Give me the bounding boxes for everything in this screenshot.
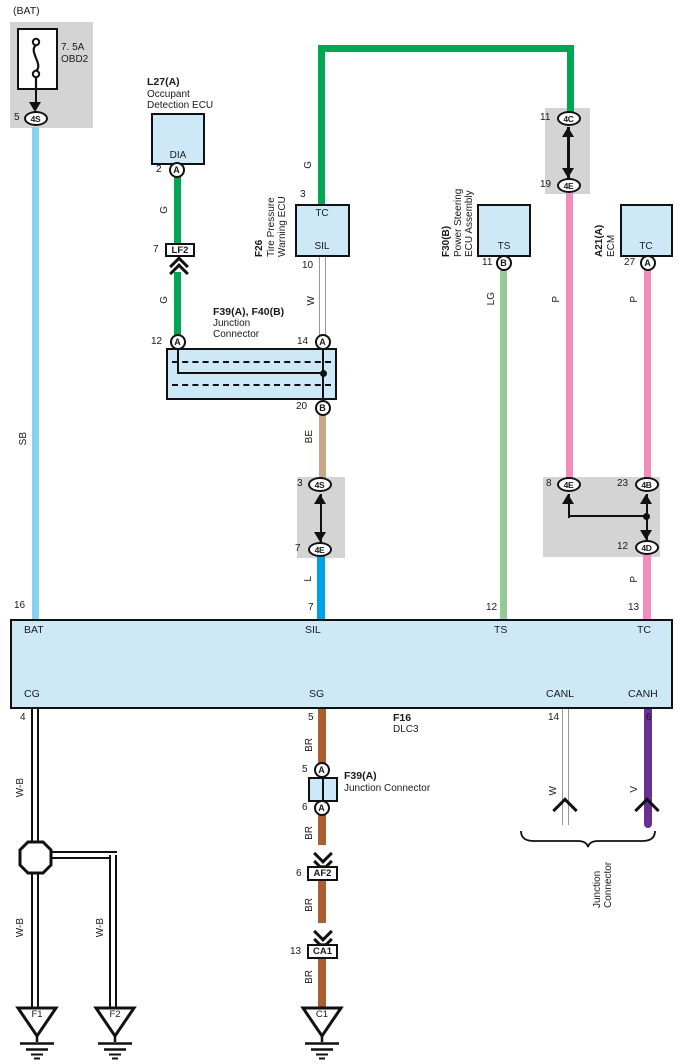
wiring-diagram: (BAT) 7. 5A OBD2 5 4S L27(A) Occupant De… bbox=[0, 0, 684, 1064]
wire-label-br: BR bbox=[304, 826, 316, 840]
dlc3-pin-tc-number: 13 bbox=[628, 602, 639, 614]
ecm-terminal: TC bbox=[626, 241, 666, 253]
connector-4s-mid: 4S bbox=[308, 477, 332, 492]
dlc3-pin-bat-number: 16 bbox=[14, 600, 25, 612]
tire-ecu-pin-top-number: 3 bbox=[300, 189, 306, 201]
occupant-ecu-pin-connector: A bbox=[169, 162, 185, 178]
wire-wb-f1 bbox=[31, 872, 39, 1008]
junction-small-pin-bottom-number: 6 bbox=[302, 802, 308, 814]
conn-tr-pin-top-number: 11 bbox=[540, 112, 550, 124]
wire-label-br: BR bbox=[304, 898, 316, 912]
conn-right-pin-left-number: 8 bbox=[546, 478, 552, 490]
junction-main-code: F39(A), F40(B) bbox=[213, 306, 284, 318]
junction-main-name1: Junction bbox=[213, 318, 250, 330]
steering-ecu-name1: Power Steering bbox=[453, 150, 465, 257]
wire-p-left bbox=[566, 193, 573, 478]
junction-main-name2: Connector bbox=[213, 329, 259, 341]
fuse-symbol-icon bbox=[19, 30, 55, 88]
wire-label-lg: LG bbox=[486, 292, 498, 305]
dlc3-pin-cg-number: 4 bbox=[20, 712, 26, 724]
wire-label-br: BR bbox=[304, 738, 316, 752]
junction-small-code: F39(A) bbox=[344, 770, 377, 782]
junction-main-internal-wire bbox=[177, 372, 324, 374]
wire-wb-f2 bbox=[109, 855, 117, 1008]
wire-label-p: P bbox=[629, 576, 641, 583]
steering-ecu-pin-connector: B bbox=[496, 255, 512, 271]
dlc3-name: DLC3 bbox=[393, 724, 419, 736]
tire-ecu-code: F26 bbox=[254, 150, 266, 257]
ecm-name: ECM bbox=[606, 150, 618, 257]
dlc3-terminal-sil: SIL bbox=[305, 624, 321, 636]
ground-f1-label: F1 bbox=[24, 1010, 50, 1021]
occupant-ecu-code: L27(A) bbox=[147, 76, 180, 88]
conn-right-arrow-down-icon bbox=[640, 530, 652, 540]
steering-ecu-name2: ECU Assembly bbox=[464, 150, 476, 257]
junction-main-splice-dot bbox=[320, 370, 327, 377]
connector-4s-top: 4S bbox=[24, 111, 48, 126]
conn-mid-arrow-down-icon bbox=[314, 532, 326, 542]
connector-4c: 4C bbox=[557, 111, 581, 126]
tire-ecu-name2: Warning ECU bbox=[277, 150, 289, 257]
fuse-pin-number: 5 bbox=[14, 112, 20, 124]
dlc3-terminal-tc: TC bbox=[637, 624, 651, 636]
conn-tr-pin-bottom-number: 19 bbox=[540, 179, 551, 191]
conn-right-arrow-up-left-icon bbox=[562, 494, 574, 504]
junction-main-pin-bottom: B bbox=[315, 400, 331, 416]
wire-p-to-dlc3 bbox=[643, 555, 651, 619]
conn-right-arrow-up-right-icon bbox=[640, 494, 652, 504]
wire-g-top-horizontal bbox=[318, 45, 574, 52]
connector-4d: 4D bbox=[635, 540, 659, 555]
dlc3-code: F16 bbox=[393, 712, 411, 724]
junction-main-pin-right: A bbox=[315, 334, 331, 350]
steering-ecu-code: F30(B) bbox=[441, 150, 453, 257]
ca1-connector: CA1 bbox=[307, 944, 338, 959]
wire-lg bbox=[500, 270, 507, 619]
fuse-rating: 7. 5A bbox=[61, 42, 84, 54]
tire-ecu-pin-bottom-number: 10 bbox=[302, 260, 313, 272]
steering-ecu-pin-number: 11 bbox=[482, 257, 492, 269]
wire-label-wb: W-B bbox=[15, 778, 27, 797]
wire-label-wb: W-B bbox=[95, 918, 107, 937]
canh-open-arrow-icon bbox=[634, 797, 659, 822]
conn-right-splice-dot bbox=[643, 513, 650, 520]
ground-c1-label: C1 bbox=[309, 1010, 335, 1021]
wire-label-g: G bbox=[159, 296, 171, 304]
conn-mid-pin-bottom-number: 7 bbox=[295, 543, 301, 555]
dlc3-terminal-sg: SG bbox=[309, 688, 324, 700]
fuse-caption: (BAT) bbox=[13, 5, 40, 17]
occupant-ecu-pin-number: 2 bbox=[156, 164, 162, 176]
occupant-ecu-terminal: DIA bbox=[158, 150, 198, 162]
wire-label-l: L bbox=[303, 576, 315, 582]
junction-main-box bbox=[166, 348, 337, 400]
wire-w-sil bbox=[319, 257, 326, 335]
wire-be bbox=[319, 415, 326, 478]
wire-label-g: G bbox=[159, 206, 171, 214]
wire-label-w: W bbox=[548, 786, 560, 795]
steering-ecu-terminal: TS bbox=[484, 241, 524, 253]
dlc3-terminal-ts: TS bbox=[494, 624, 507, 636]
junction-main-dashed-line bbox=[172, 384, 331, 386]
dlc3-pin-sg-number: 5 bbox=[308, 712, 314, 724]
ecm-pin-connector: A bbox=[640, 255, 656, 271]
conn-tr-arrow-up-icon bbox=[562, 127, 574, 137]
conn-mid-pin-top-number: 3 bbox=[297, 478, 303, 490]
af2-pin-number: 6 bbox=[296, 868, 302, 880]
conn-tr-arrow-down-icon bbox=[562, 168, 574, 178]
connector-4e-top-right: 4E bbox=[557, 178, 581, 193]
wire-label-p: P bbox=[629, 296, 641, 303]
connector-4b: 4B bbox=[635, 477, 659, 492]
wire-wb-upper bbox=[31, 709, 39, 842]
wire-label-wb: W-B bbox=[15, 918, 27, 937]
af2-connector: AF2 bbox=[307, 866, 338, 881]
junction-small-name: Junction Connector bbox=[344, 783, 430, 795]
ecm-pin-number: 27 bbox=[624, 257, 635, 269]
connector-4e-mid: 4E bbox=[308, 542, 332, 557]
occupant-ecu-name1: Occupant bbox=[147, 89, 190, 101]
wire-g-dia-upper bbox=[174, 168, 181, 244]
wire-g-tc-up bbox=[318, 45, 325, 205]
wire-label-v: V bbox=[629, 786, 641, 793]
wire-l bbox=[317, 556, 325, 619]
dlc3-pin-canl-number: 14 bbox=[548, 712, 559, 724]
occupant-ecu-name2: Detection ECU bbox=[147, 100, 213, 112]
dlc3-terminal-bat: BAT bbox=[24, 624, 44, 636]
wire-label-be: BE bbox=[304, 430, 316, 443]
tire-ecu-terminal-top: TC bbox=[302, 208, 342, 220]
connector-4e-right: 4E bbox=[557, 477, 581, 492]
wire-label-p: P bbox=[551, 296, 563, 303]
junction-small-pin-top-number: 5 bbox=[302, 764, 308, 776]
tire-ecu-name1: Tire Pressure bbox=[266, 150, 278, 257]
junction-main-internal-wire bbox=[177, 350, 179, 373]
wire-g-top-down bbox=[567, 45, 574, 113]
ca1-pin-number: 13 bbox=[290, 946, 301, 958]
conn-right-pin-right-number: 23 bbox=[617, 478, 628, 490]
wire-label-br: BR bbox=[304, 970, 316, 984]
wire-label-w: W bbox=[306, 296, 318, 305]
dlc3-terminal-cg: CG bbox=[24, 688, 40, 700]
junction-main-pin-left: A bbox=[170, 334, 186, 350]
wire-p-ecm bbox=[644, 270, 651, 478]
junction-main-pin-right-number: 14 bbox=[297, 336, 308, 348]
conn-right-line-horizontal bbox=[568, 515, 649, 518]
junction-brace-icon bbox=[518, 830, 658, 850]
junction-main-pin-left-number: 12 bbox=[151, 336, 162, 348]
junction-brace-name1: Junction bbox=[592, 848, 604, 908]
junction-small-pin-bottom: A bbox=[314, 800, 330, 816]
wire-sb bbox=[32, 127, 39, 620]
splice-octagon-icon bbox=[18, 840, 53, 875]
dlc3-pin-sil-number: 7 bbox=[308, 602, 314, 614]
junction-brace-name2: Connector bbox=[603, 848, 615, 908]
lf2-connector: LF2 bbox=[165, 243, 195, 257]
wire-label-g: G bbox=[303, 161, 315, 169]
lf2-pin-number: 7 bbox=[153, 244, 159, 256]
wire-wb-branch-horizontal bbox=[49, 851, 117, 859]
dlc3-terminal-canl: CANL bbox=[546, 688, 574, 700]
junction-main-dashed-line bbox=[172, 361, 331, 363]
tire-ecu-terminal-bottom: SIL bbox=[302, 241, 342, 253]
fuse-name: OBD2 bbox=[61, 54, 88, 66]
ground-f2-label: F2 bbox=[102, 1010, 128, 1021]
junction-small-pin-top: A bbox=[314, 762, 330, 778]
dlc3-pin-canh-number: 6 bbox=[646, 712, 652, 724]
wire-label-sb: SB bbox=[18, 432, 30, 445]
dlc3-pin-ts-number: 12 bbox=[486, 602, 497, 614]
conn-mid-arrow-up-icon bbox=[314, 494, 326, 504]
ecm-code: A21(A) bbox=[594, 150, 606, 257]
junction-small-divider bbox=[322, 779, 324, 800]
canl-open-arrow-icon bbox=[552, 797, 577, 822]
dlc3-terminal-canh: CANH bbox=[628, 688, 658, 700]
conn-right-pin-bottom-number: 12 bbox=[617, 541, 628, 553]
junction-main-pin-bottom-number: 20 bbox=[296, 401, 307, 413]
